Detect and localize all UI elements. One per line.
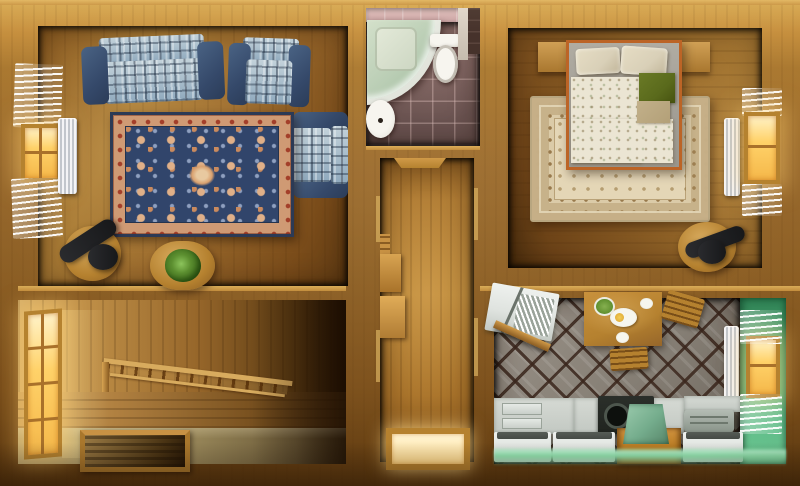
door-jamb	[376, 330, 380, 382]
floorplan-scene	[0, 0, 800, 486]
appliance-vent-line	[690, 422, 728, 424]
kitchen-radiator	[724, 326, 739, 402]
living-armchair-top	[227, 37, 311, 112]
stair-window	[24, 308, 62, 459]
dining-chair-bottom	[609, 347, 648, 372]
kitchen-back-panel-left	[494, 398, 574, 434]
stair-room-shadow	[252, 300, 346, 464]
living-sofa	[81, 33, 226, 107]
kitchen-appliance	[684, 410, 734, 432]
living-rug-field	[125, 126, 279, 223]
railing-post	[102, 362, 109, 392]
door-jamb	[376, 196, 380, 242]
window-transom	[750, 364, 776, 367]
countertop	[497, 432, 548, 439]
countertop	[556, 432, 612, 439]
hallway-lit-hatch	[386, 428, 470, 470]
living-window-blinds-top	[13, 63, 63, 129]
fried-egg-yolk	[615, 313, 624, 322]
living-window-blinds-bottom	[11, 177, 63, 239]
countertop	[686, 432, 740, 439]
bedroom-radiator	[724, 118, 740, 196]
living-radiator	[58, 118, 77, 194]
stair-opening	[80, 430, 190, 472]
rug-medallion	[189, 164, 215, 186]
bedroom-window-blinds-bottom	[742, 184, 782, 216]
appliance-vent-line	[690, 416, 728, 418]
wall-divider-bath-highlight	[366, 146, 480, 150]
pillow-left	[575, 47, 620, 75]
kitchen-green-sink	[623, 404, 669, 444]
living-armchair-right	[291, 112, 348, 198]
door-jamb	[474, 188, 478, 240]
kitchen-window-blinds-bottom	[740, 394, 782, 434]
kitchen-green-glow-strip	[494, 448, 786, 466]
hallway-step-slats	[380, 234, 390, 254]
window-transom	[748, 145, 776, 148]
door-jamb	[474, 318, 478, 376]
small-plate	[616, 332, 629, 343]
sofa-seat	[104, 58, 204, 104]
armchair-back	[331, 126, 348, 184]
double-bed	[566, 40, 682, 170]
hallway-step-lower	[380, 296, 405, 338]
egg-plate	[610, 308, 637, 327]
drawer-unit	[502, 418, 542, 429]
bathroom-dark-tiles	[468, 8, 480, 54]
sink-drain	[378, 118, 383, 123]
sofa-arm-left	[81, 46, 110, 105]
kitchen-back-panel-mid	[574, 398, 598, 434]
armchair-seat	[245, 59, 293, 105]
staircase-room	[18, 300, 346, 464]
kitchen-window-blinds-top	[740, 310, 782, 344]
shower-tray	[375, 27, 417, 71]
drawer-unit	[502, 403, 542, 415]
dining-table	[584, 292, 662, 346]
bathroom-shelf-ledge	[458, 8, 468, 60]
toilet-bowl	[433, 45, 458, 83]
bedroom-desk-chair-seat	[698, 240, 726, 264]
kitchen-window	[746, 336, 780, 398]
hallway-door-lintel	[394, 158, 446, 168]
living-desk-chair-seat	[88, 244, 118, 270]
hallway-step-upper	[380, 254, 401, 292]
tan-blanket	[637, 101, 670, 123]
duvet-lower	[571, 119, 673, 163]
armchair-seat	[291, 128, 331, 182]
pillow-right	[620, 45, 668, 76]
wall-top-highlight	[0, 0, 800, 5]
green-blanket	[639, 73, 675, 103]
small-plate	[640, 298, 653, 309]
bedroom-window	[744, 112, 780, 184]
living-window	[21, 124, 61, 182]
living-rug	[110, 112, 294, 237]
window-transom	[25, 151, 57, 154]
potted-plant	[165, 249, 201, 282]
sofa-arm-right	[197, 41, 226, 100]
